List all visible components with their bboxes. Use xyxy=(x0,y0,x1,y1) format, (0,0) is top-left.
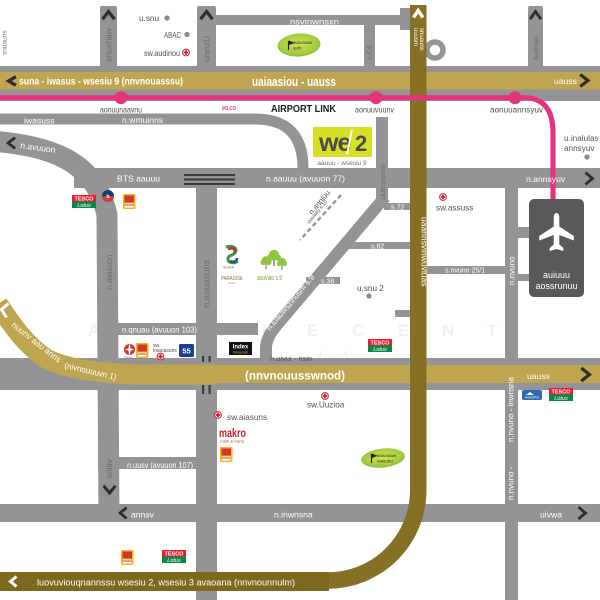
svg-text:n.nvuno: n.nvuno xyxy=(508,256,517,285)
svg-text:auiunaaw: auiunaaw xyxy=(377,453,397,458)
svg-text:auiuuu: auiuuu xyxy=(543,270,570,280)
svg-text:sw.audinou: sw.audinou xyxy=(144,49,180,58)
svg-text:n.avuuon: n.avuuon xyxy=(104,254,114,290)
svg-text:sw.Uuzioa: sw.Uuzioa xyxy=(307,401,345,410)
svg-text:aossrunuu: aossrunuu xyxy=(535,281,577,291)
svg-text:n.nvuno - inwnsna: n.nvuno - inwnsna xyxy=(507,377,516,442)
svg-text:b: b xyxy=(106,194,109,200)
svg-text:n.uusv (avuuon 107): n.uusv (avuuon 107) xyxy=(127,461,193,470)
svg-text:snuehiuv: snuehiuv xyxy=(104,27,114,62)
svg-text:quln: quln xyxy=(293,46,302,51)
svg-text:iuavuno: iuavuno xyxy=(377,459,393,464)
svg-text:s.C4: s.C4 xyxy=(367,46,374,61)
svg-text:u.inalulas: u.inalulas xyxy=(564,134,599,143)
svg-text:n.uivui - nsin: n.uivui - nsin xyxy=(270,354,312,363)
svg-text:nsvinwnsxn: nsvinwnsxn xyxy=(290,18,339,27)
svg-text:Cash & Carry: Cash & Carry xyxy=(220,439,244,444)
svg-text:u.snu 2: u.snu 2 xyxy=(357,284,384,293)
svg-text:AIRPORT LINK: AIRPORT LINK xyxy=(271,103,336,115)
svg-text:s.62: s.62 xyxy=(371,244,384,251)
svg-text:IKLCO: IKLCO xyxy=(222,106,237,112)
svg-text:suna - iwasus - wsesiu 9 (nnvn: suna - iwasus - wsesiu 9 (nnvnouasssu) xyxy=(19,77,183,88)
svg-text:aonuunaavnu: aonuunaavnu xyxy=(100,106,142,115)
svg-text:E: E xyxy=(307,321,318,340)
svg-text:iwasuss: iwasuss xyxy=(24,116,55,126)
svg-text:n.qnuau (avuuon 103): n.qnuau (avuuon 103) xyxy=(122,326,197,335)
svg-text:auiunaaw: auiunaaw xyxy=(293,40,313,45)
svg-text:s.38: s.38 xyxy=(321,279,334,286)
svg-text:uuusm: uuusm xyxy=(412,28,418,46)
svg-text:aauuu - wsesiu 9: aauuu - wsesiu 9 xyxy=(317,160,367,167)
svg-text:annsyuv: annsyuv xyxy=(564,144,595,153)
svg-text:n.asuasuns: n.asuasuns xyxy=(202,259,213,308)
svg-text:n.nvuno -: n.nvuno - xyxy=(507,466,516,500)
svg-text:s.nvuno 25/1: s.nvuno 25/1 xyxy=(445,268,485,275)
svg-text:aouviao s.9: aouviao s.9 xyxy=(257,275,282,282)
svg-text:CHINA: CHINA xyxy=(124,356,133,360)
svg-text:uauss: uauss xyxy=(527,371,550,381)
svg-text:n.annsyuv: n.annsyuv xyxy=(526,174,566,184)
svg-text:lnauiasuns: lnauiasuns xyxy=(153,348,177,354)
svg-text:n.aauuu (avuuon 77): n.aauuu (avuuon 77) xyxy=(266,174,345,184)
svg-text:uaannsvinwuviuas: uaannsvinwuviuas xyxy=(420,217,430,286)
svg-text:E: E xyxy=(398,321,409,340)
svg-text:sw.aiasuns: sw.aiasuns xyxy=(227,413,267,422)
svg-text:aonuuvuunv: aonuuvuunv xyxy=(355,106,394,115)
svg-text:SILVER: SILVER xyxy=(223,266,235,270)
svg-text:55: 55 xyxy=(182,347,190,356)
svg-text:2: 2 xyxy=(355,131,367,156)
svg-text:(nnvnouusswnod): (nnvnouusswnod) xyxy=(245,371,345,383)
svg-text:uivnzU: uivnzU xyxy=(202,36,212,62)
svg-text:n.wmuinns: n.wmuinns xyxy=(122,115,163,125)
svg-text:T: T xyxy=(487,321,498,340)
svg-text:uivwa: uivwa xyxy=(540,510,562,520)
svg-text:uunusyioa: uunusyioa xyxy=(378,164,387,199)
svg-text:uauss: uauss xyxy=(554,76,577,86)
svg-text:snuauns: snuauns xyxy=(2,30,9,55)
svg-text:ABAC: ABAC xyxy=(164,31,181,40)
svg-text:n.inwnsna: n.inwnsna xyxy=(274,510,313,520)
svg-text:s.72: s.72 xyxy=(391,205,404,212)
svg-text:sw.assuss: sw.assuss xyxy=(436,204,473,213)
svg-text:aonuuannsyuv: aonuuannsyuv xyxy=(490,106,543,115)
svg-text:C: C xyxy=(352,321,364,340)
svg-text:N: N xyxy=(442,321,454,340)
svg-text:PARK: PARK xyxy=(228,281,236,285)
svg-text:uaiaasiou - uauss: uaiaasiou - uauss xyxy=(252,74,336,89)
svg-text:living mall: living mall xyxy=(234,351,248,355)
svg-text:anlsv: anlsv xyxy=(104,458,114,479)
svg-text:annsv: annsv xyxy=(131,510,155,520)
svg-text:suinan: suinan xyxy=(532,36,541,60)
svg-text:HomePro: HomePro xyxy=(525,396,539,400)
svg-text:luovuviouqnannssu wsesiu 2, ws: luovuviouqnannssu wsesiu 2, wsesiu 3 ava… xyxy=(37,578,295,588)
svg-text:BTS aauuu: BTS aauuu xyxy=(117,174,160,184)
svg-text:u.snu: u.snu xyxy=(139,14,159,23)
